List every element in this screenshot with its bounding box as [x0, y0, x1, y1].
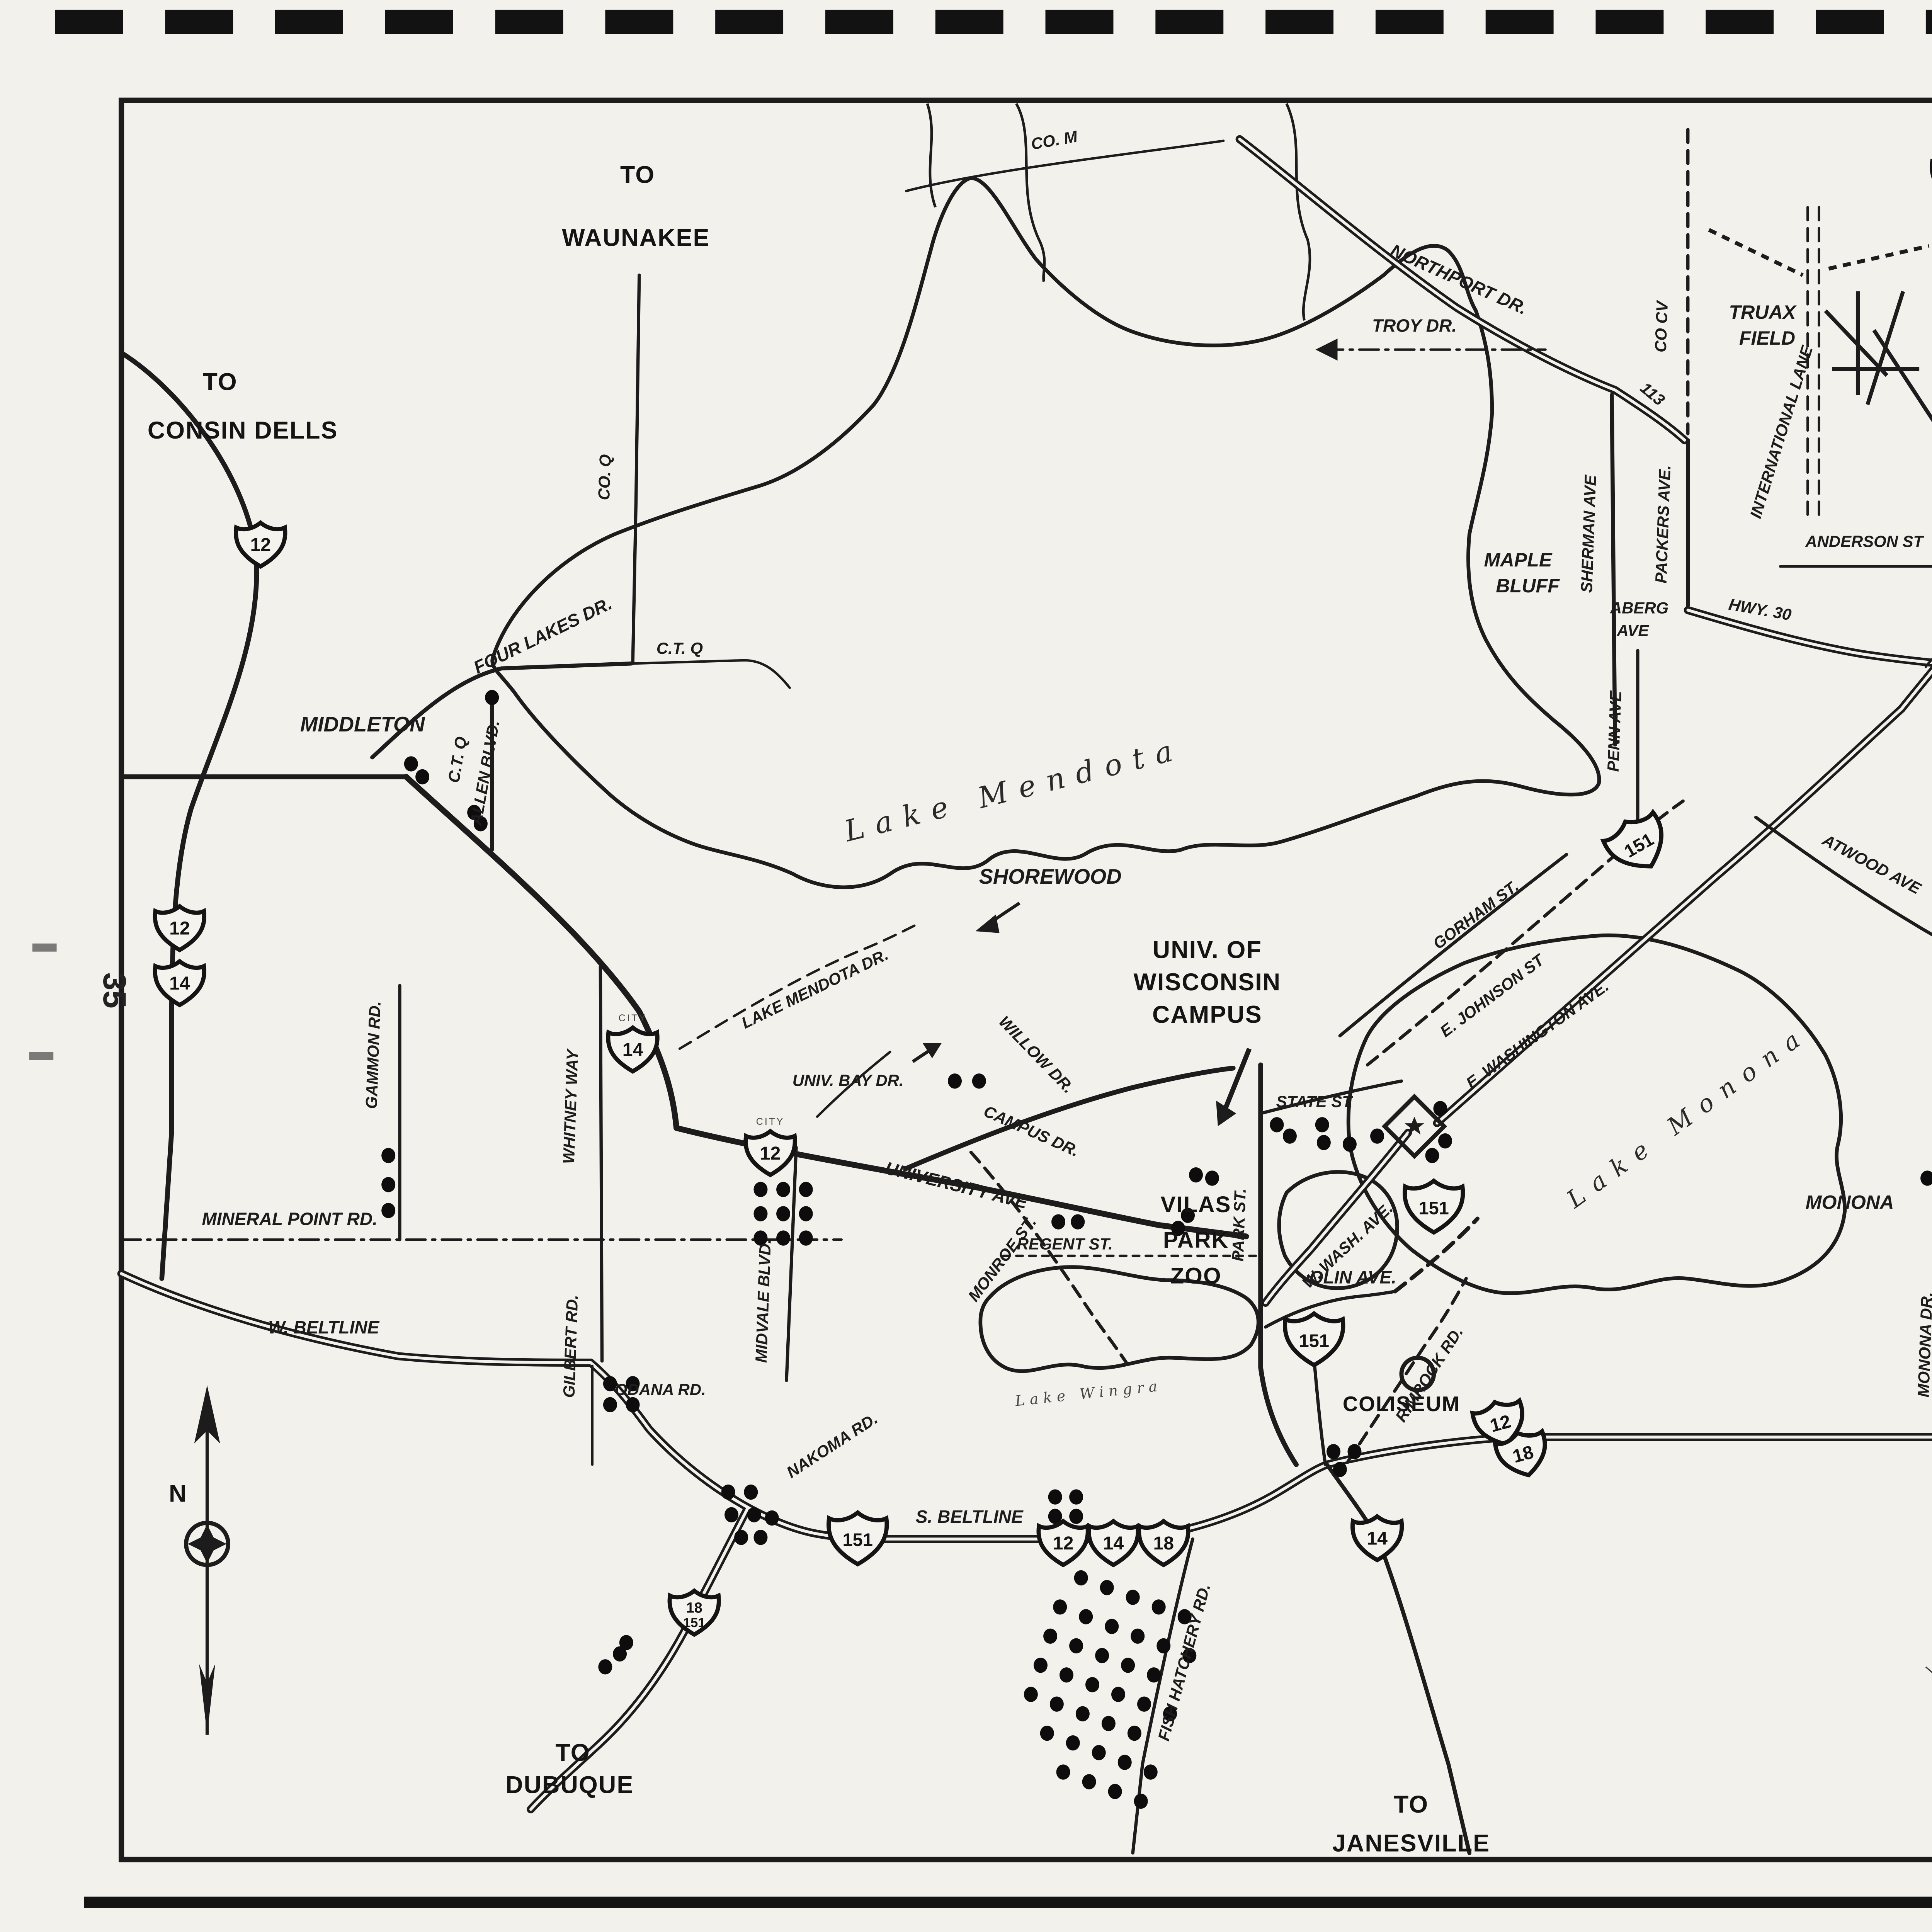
response-dot — [485, 690, 499, 705]
svg-text:18: 18 — [686, 1600, 702, 1616]
map-label: UNIV. BAY DR. — [793, 1071, 904, 1089]
map-label: GAMMON RD. — [362, 1001, 384, 1109]
map-label: VILAS — [1160, 1192, 1231, 1217]
response-dot — [1189, 1167, 1203, 1182]
response-dot — [776, 1206, 790, 1221]
response-dot — [1425, 1148, 1439, 1163]
response-dot — [1050, 1697, 1064, 1712]
response-dot — [734, 1530, 748, 1545]
map-label: ODANA RD. — [615, 1380, 706, 1398]
response-dot — [1043, 1629, 1057, 1644]
svg-text:151: 151 — [843, 1530, 873, 1550]
response-dot — [381, 1148, 395, 1163]
response-dot — [1347, 1444, 1361, 1459]
svg-text:CITY: CITY — [619, 1013, 647, 1024]
response-dot — [721, 1485, 735, 1500]
response-dot — [724, 1507, 738, 1522]
map-label: TO — [555, 1739, 590, 1766]
response-dot — [1131, 1629, 1145, 1644]
response-dot — [1315, 1117, 1329, 1132]
map-label: MAPLE — [1484, 549, 1553, 571]
response-dot — [1076, 1706, 1090, 1721]
response-dot — [1370, 1128, 1384, 1143]
binder-mark — [1926, 10, 1932, 34]
response-dot — [1156, 1638, 1170, 1653]
map-label: MIDDLETON — [300, 713, 425, 736]
response-dot — [1333, 1462, 1347, 1477]
response-dot — [415, 769, 429, 784]
binder-mark — [1155, 10, 1223, 34]
response-dot — [1126, 1590, 1140, 1605]
map-label: STATE ST — [1276, 1092, 1354, 1111]
binder-mark — [385, 10, 453, 34]
map-label: AVE — [1616, 621, 1649, 639]
response-dot — [753, 1182, 767, 1197]
svg-text:14: 14 — [1367, 1528, 1388, 1549]
response-dot — [1108, 1784, 1122, 1799]
response-dot — [1092, 1745, 1106, 1760]
response-dot — [948, 1073, 962, 1088]
binder-mark — [275, 10, 343, 34]
response-dot — [381, 1177, 395, 1192]
response-dot — [1069, 1489, 1083, 1504]
map-label: TROY DR. — [1372, 316, 1457, 336]
left-edge-mark — [29, 1052, 53, 1060]
svg-text:12: 12 — [250, 534, 271, 555]
response-dot — [972, 1073, 986, 1088]
svg-text:12: 12 — [760, 1143, 781, 1164]
svg-text:151: 151 — [683, 1616, 705, 1630]
map-label: UNIV. OF — [1153, 936, 1262, 963]
map-label: FIELD — [1739, 327, 1795, 349]
response-dot — [799, 1230, 813, 1245]
map-label: CAMPUS — [1152, 1001, 1262, 1028]
svg-text:12: 12 — [169, 918, 190, 939]
map-label: MONONA — [1806, 1192, 1894, 1213]
response-dot — [1066, 1735, 1080, 1750]
binder-mark — [1706, 10, 1774, 34]
map-label: JANESVILLE — [1332, 1830, 1490, 1857]
response-dot — [404, 756, 418, 771]
response-dot — [1433, 1101, 1447, 1116]
response-dot — [1056, 1764, 1070, 1779]
map-label: TO — [620, 161, 655, 188]
binder-mark — [605, 10, 673, 34]
response-dot — [619, 1635, 633, 1650]
map-label: DUBUQUE — [505, 1772, 634, 1799]
response-dot — [744, 1485, 758, 1500]
response-dot — [1024, 1687, 1038, 1702]
response-dot — [598, 1659, 612, 1674]
response-dot — [1152, 1599, 1166, 1614]
response-dot — [1121, 1658, 1135, 1673]
response-dot — [1082, 1774, 1096, 1789]
response-dot — [1327, 1444, 1340, 1459]
paper-background — [0, 0, 1932, 1932]
response-dot — [765, 1510, 779, 1526]
response-dot — [1102, 1716, 1116, 1731]
response-dot — [776, 1182, 790, 1197]
response-dot — [1270, 1117, 1284, 1132]
response-dot — [1111, 1687, 1125, 1702]
response-dot — [799, 1182, 813, 1197]
map-label: S. BELTLINE — [916, 1507, 1024, 1527]
map-label: SHOREWOOD — [979, 865, 1122, 888]
binder-mark — [1376, 10, 1444, 34]
binder-mark — [1596, 10, 1664, 34]
scanned-map-page: N 12121414CITY12CITY51151151151151181511… — [0, 0, 1932, 1932]
svg-text:14: 14 — [1103, 1533, 1124, 1554]
binder-mark — [1265, 10, 1333, 34]
response-dot — [603, 1397, 617, 1412]
binder-mark — [715, 10, 783, 34]
map-label: TO — [1394, 1791, 1429, 1818]
road-whitney — [600, 966, 602, 1361]
map-label: ANDERSON ST — [1805, 532, 1924, 551]
map-label: REGENT ST. — [1017, 1235, 1113, 1253]
response-dot — [753, 1530, 767, 1545]
binder-mark — [1486, 10, 1554, 34]
response-dot — [753, 1206, 767, 1221]
response-dot — [1343, 1136, 1357, 1151]
binder-mark — [1046, 10, 1114, 34]
response-dot — [1034, 1658, 1048, 1673]
response-dot — [1051, 1214, 1065, 1229]
map-label: CONSIN DELLS — [148, 417, 338, 444]
svg-text:14: 14 — [169, 973, 190, 994]
response-dot — [1100, 1580, 1114, 1595]
binder-strip-marks — [55, 10, 1932, 34]
map-label: CO. Q — [595, 454, 615, 500]
map-label: MINERAL POINT RD. — [202, 1209, 378, 1229]
svg-text:14: 14 — [622, 1039, 643, 1060]
binder-mark — [495, 10, 563, 34]
response-dot — [1071, 1214, 1085, 1229]
map-label: PARK ST. — [1228, 1188, 1249, 1262]
map-label: PARK — [1163, 1228, 1229, 1253]
response-dot — [1085, 1677, 1099, 1692]
response-dot — [799, 1206, 813, 1221]
map-label: ZOO — [1170, 1263, 1221, 1288]
response-dot — [626, 1397, 640, 1412]
response-dot — [747, 1507, 761, 1522]
binder-mark — [825, 10, 893, 34]
map-label: W. BELTLINE — [268, 1317, 380, 1337]
response-dot — [1137, 1697, 1151, 1712]
response-dot — [1074, 1570, 1088, 1585]
response-dot — [1105, 1619, 1119, 1634]
response-dot — [1048, 1489, 1062, 1504]
map-label: ABERG — [1610, 599, 1668, 617]
bottom-rule — [84, 1897, 1932, 1908]
left-edge-mark — [32, 944, 57, 952]
map-label: CO CV — [1651, 299, 1671, 352]
response-dot — [1053, 1599, 1067, 1614]
response-dot — [1118, 1755, 1132, 1770]
response-dot — [1095, 1648, 1109, 1663]
response-dot — [1205, 1170, 1219, 1185]
response-dot — [1060, 1667, 1073, 1682]
response-dot — [1317, 1135, 1331, 1150]
page-number: 35 — [97, 973, 133, 1009]
binder-mark — [1816, 10, 1884, 34]
binder-mark — [55, 10, 123, 34]
binder-mark — [935, 10, 1003, 34]
response-dot — [381, 1203, 395, 1218]
response-dot — [1079, 1609, 1093, 1624]
compass-north-label: N — [169, 1480, 187, 1507]
map-label: TRUAX — [1729, 301, 1797, 323]
response-dot — [1144, 1764, 1158, 1779]
response-dot — [1134, 1794, 1148, 1809]
svg-text:12: 12 — [1053, 1533, 1074, 1554]
svg-text:CITY: CITY — [756, 1116, 785, 1127]
map-label: BLUFF — [1496, 575, 1560, 597]
response-dot — [1283, 1128, 1297, 1143]
svg-text:151: 151 — [1419, 1198, 1449, 1218]
binder-mark — [165, 10, 233, 34]
response-dot — [776, 1230, 790, 1245]
map-label: WAUNAKEE — [562, 224, 710, 252]
response-dot — [1040, 1726, 1054, 1741]
svg-text:151: 151 — [1299, 1331, 1329, 1351]
response-dot — [1438, 1133, 1452, 1148]
map-label: PENN AVE — [1604, 690, 1625, 772]
response-dot — [1069, 1509, 1083, 1524]
map-label: GILBERT RD. — [560, 1294, 581, 1398]
response-dot — [1069, 1638, 1083, 1653]
map-label: C.T. Q — [656, 639, 703, 658]
svg-text:18: 18 — [1153, 1533, 1174, 1554]
map-label: TO — [202, 368, 237, 395]
response-dot — [1147, 1667, 1161, 1682]
response-dot — [1128, 1726, 1141, 1741]
map-label: WISCONSIN — [1133, 969, 1281, 996]
